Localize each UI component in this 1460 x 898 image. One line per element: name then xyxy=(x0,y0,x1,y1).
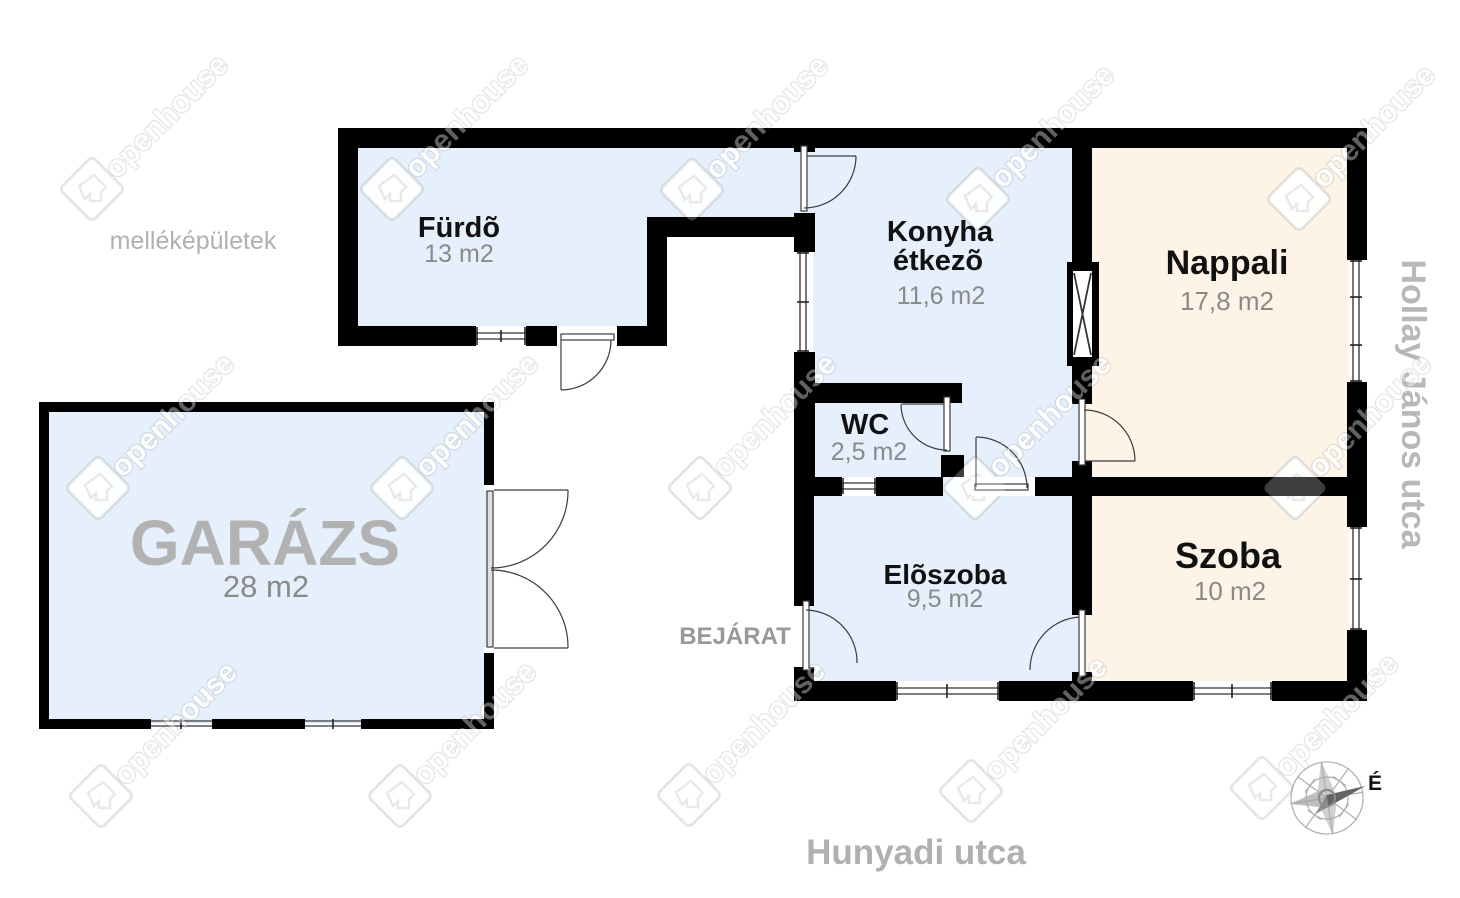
svg-text:É: É xyxy=(1368,772,1382,795)
svg-text:28 m2: 28 m2 xyxy=(223,569,309,604)
svg-text:Nappali: Nappali xyxy=(1166,244,1289,282)
svg-text:2,5 m2: 2,5 m2 xyxy=(831,438,907,466)
svg-text:9,5 m2: 9,5 m2 xyxy=(907,585,983,613)
svg-text:10 m2: 10 m2 xyxy=(1194,576,1266,606)
svg-text:melléképületek: melléképületek xyxy=(110,227,277,255)
svg-text:Hunyadi utca: Hunyadi utca xyxy=(806,833,1026,872)
svg-text:Szoba: Szoba xyxy=(1175,535,1282,576)
svg-text:étkezõ: étkezõ xyxy=(893,245,983,277)
svg-text:WC: WC xyxy=(841,409,889,441)
svg-text:17,8 m2: 17,8 m2 xyxy=(1180,286,1274,316)
svg-text:BEJÁRAT: BEJÁRAT xyxy=(679,622,791,650)
svg-text:11,6 m2: 11,6 m2 xyxy=(897,282,985,310)
svg-text:13 m2: 13 m2 xyxy=(424,240,493,268)
